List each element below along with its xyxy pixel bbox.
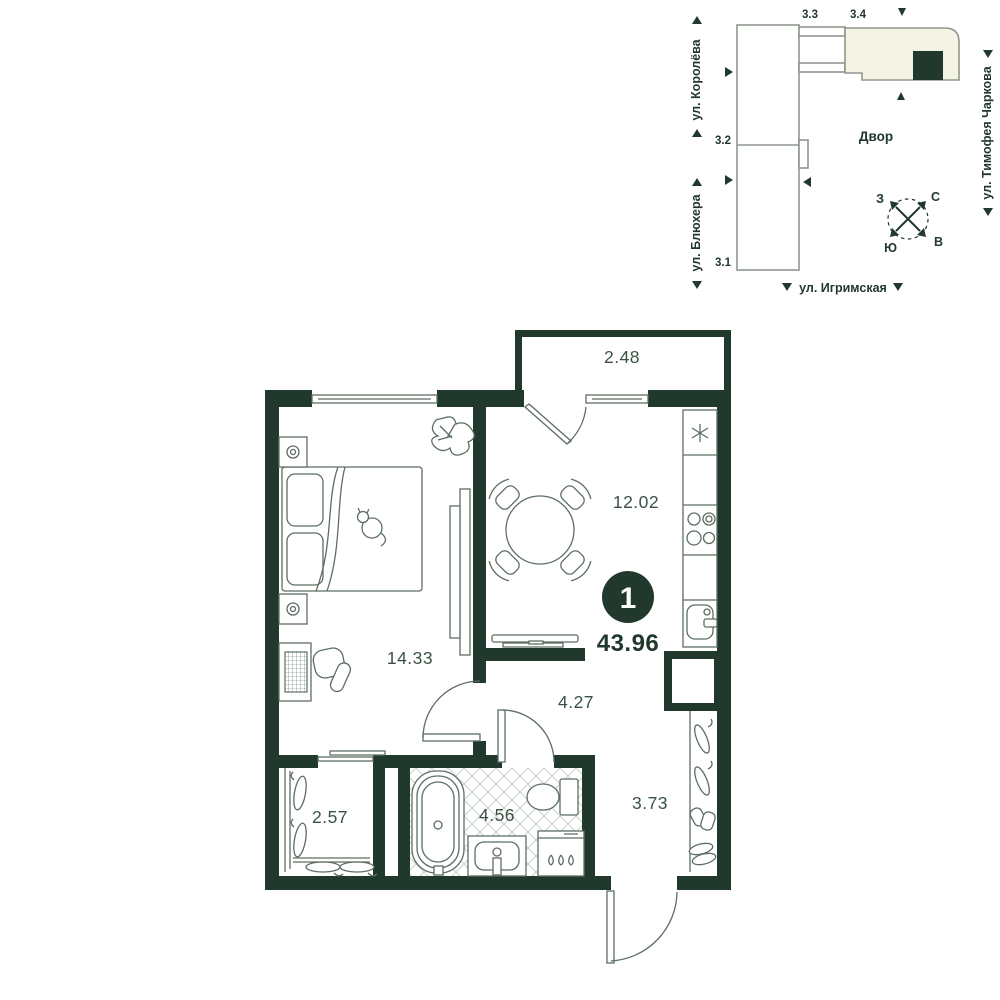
site-building-31-32 [737,25,799,270]
room-label-wardrobe: 2.57 [312,807,348,827]
street-arrow-icon [692,281,702,289]
room-label-hallway: 4.27 [558,692,594,712]
bathroom-sink-icon [468,836,526,876]
floorplan-canvas: 3.3 3.4 3.2 3.1 Двор ул. Королёва ул. Бл… [0,0,1000,1000]
room-count-badge: 1 [602,571,654,623]
compass-icon: З С Ю В [876,190,943,255]
floor-plan: 2.48 12.02 14.33 4.27 2.57 4.56 3.73 1 4… [265,330,731,963]
entrance-arrow-icon [725,67,733,77]
total-area-label: 43.96 [597,630,660,657]
street-label-blyukhera: ул. Блюхера [689,178,703,289]
site-building-33-bar1 [799,27,845,36]
kitchen-furniture [486,410,717,647]
compass-west-label: З [876,192,884,206]
street-arrow-icon [893,283,903,291]
room-label-kitchen: 12.02 [613,492,659,512]
street-name: ул. Тимофея Чаркова [980,65,994,199]
apartment-location-marker [913,51,943,80]
balcony-door [525,404,586,444]
nightstand-icon [279,594,307,624]
entrance-door [607,891,677,963]
entrance-arrow-icon [898,8,906,16]
bedroom-furniture [279,417,474,701]
tv-console-icon [492,635,578,647]
site-building-notch [799,140,808,168]
compass-north-label: С [931,190,940,204]
courtyard-label: Двор [859,129,893,144]
dining-table-icon [486,476,593,583]
entrance-arrow-icon [897,92,905,100]
street-label-igrimskaya: ул. Игримская [782,281,903,295]
street-arrow-icon [692,178,702,186]
entry-hall-fittings [688,711,717,872]
site-building-33-bar2 [799,63,845,72]
rooms-count-value: 1 [620,582,637,615]
street-arrow-icon [692,16,702,24]
street-label-timofeya-charkova: ул. Тимофея Чаркова [980,50,994,216]
kitchen-counter-icon [683,410,717,647]
street-label-koroleva: ул. Королёва [689,16,703,137]
nightstand-icon [279,437,307,467]
desk-chair-icon [311,646,352,693]
plant-icon [432,417,475,455]
street-arrow-icon [692,129,702,137]
kitchen-sink-icon [687,605,717,639]
hanger-icon [306,862,343,876]
compass-south-label: Ю [884,241,897,255]
street-arrow-icon [983,208,993,216]
street-name: ул. Блюхера [689,193,703,271]
room-label-entry-hall: 3.73 [632,793,668,813]
street-arrow-icon [983,50,993,58]
coat-hanger-icon [692,761,713,797]
sneakers-icon [688,806,716,831]
hanger-icon [291,772,308,811]
bedroom-door [423,681,480,741]
window-bedroom [312,395,437,403]
compass-east-label: В [934,235,943,249]
hanger-icon [340,862,377,876]
wardrobe-cabinet-icon [450,489,470,655]
room-label-bathroom: 4.56 [479,805,515,825]
floorplan-page: 3.3 3.4 3.2 3.1 Двор ул. Королёва ул. Бл… [0,0,1000,1000]
building-label-32: 3.2 [715,135,731,147]
desk-icon [279,643,311,701]
site-plan: 3.3 3.4 3.2 3.1 Двор ул. Королёва ул. Бл… [689,8,994,295]
building-label-34: 3.4 [850,9,867,21]
hanger-icon [291,819,308,858]
window-kitchen [586,395,648,403]
room-label-balcony: 2.48 [604,347,640,367]
bathroom-door [498,710,554,762]
coat-hanger-icon [692,719,713,755]
bed-icon [282,467,422,591]
entrance-arrow-icon [803,177,811,187]
entrance-arrow-icon [725,175,733,185]
street-name: ул. Игримская [799,281,887,295]
room-label-living-room: 14.33 [387,648,433,668]
washing-machine-icon [538,831,584,876]
building-label-33: 3.3 [802,9,818,21]
street-name: ул. Королёва [689,38,703,120]
slippers-icon [688,841,717,867]
bathtub-icon [412,771,464,875]
building-label-31: 3.1 [715,257,732,269]
street-arrow-icon [782,283,792,291]
